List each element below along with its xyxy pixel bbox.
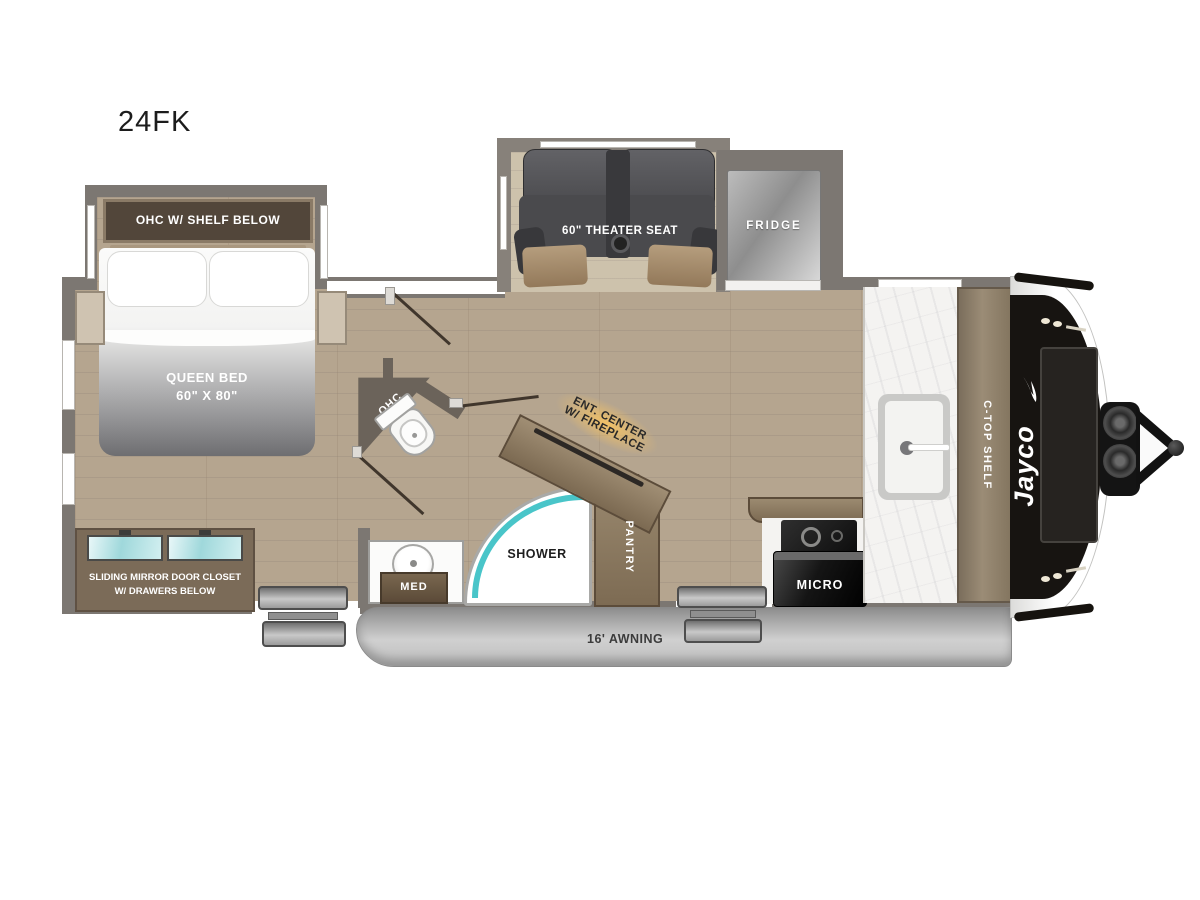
fridge: FRIDGE [727,170,821,282]
sliding-mirror-closet: SLIDING MIRROR DOOR CLOSET W/ DRAWERS BE… [75,528,255,612]
fridge-shelf [725,280,821,291]
left-wall [62,277,75,614]
burner-icon [831,530,843,542]
med-label: MED [382,581,446,595]
bed-label-line1: QUEEN BED [99,370,315,386]
shower-label: SHOWER [497,547,577,561]
closet-label-line1: SLIDING MIRROR DOOR CLOSET [77,572,253,584]
door-hinge [352,446,362,458]
entry-steps-right-lower [684,619,762,643]
faucet-spout [908,444,950,451]
microwave: MICRO [773,551,867,607]
floorplan-title: 24FK [118,106,191,139]
top-wall-window-band [327,277,505,298]
burner-icon [801,527,821,547]
pillow [107,251,207,307]
mirror-door [167,535,243,561]
theater-footrest [522,244,588,287]
cooktop [781,520,857,554]
ctop-shelf-label: C-TOP SHELF [977,365,993,525]
nightstand-left [75,291,105,345]
bed-label-line2: 60" X 80" [99,388,315,404]
theater-footrest [647,244,713,287]
hitch-ball-icon [1168,440,1184,456]
propane-tank [1103,444,1137,478]
theater-window-left [500,176,507,250]
propane-tank [1103,406,1137,440]
front-window [1040,347,1098,543]
vanity-sink-drain [410,560,417,567]
entry-steps-right [677,586,767,608]
entry-steps-left-lower [262,621,346,647]
nightstand-right [317,291,347,345]
marker-light [1053,573,1062,579]
theater-seat-label: 60" THEATER SEAT [540,224,700,238]
toilet-wall-stub [383,358,393,380]
theater-window-top [540,141,696,148]
med-cabinet: MED [380,572,448,604]
fridge-label: FRIDGE [728,219,820,233]
marker-light [1053,321,1062,327]
pantry-label: PANTRY [619,497,635,597]
pillow [209,251,309,307]
queen-bed: QUEEN BED 60" X 80" [99,248,315,456]
awning-label: 16' AWNING [587,632,663,646]
sheet-fold [99,330,315,346]
floorplan-canvas: 24FK OHC W/ SHELF BELOW QUEEN BED 60" X … [0,0,1200,900]
marker-light [1041,318,1050,324]
jayco-logo: Jayco [1009,396,1043,536]
bedroom-top-wall [85,185,327,197]
left-wall-window-1 [62,340,75,410]
entry-steps-right-riser [690,610,756,618]
marker-light [1041,576,1050,582]
mirror-door [87,535,163,561]
bedroom-ohc-label: OHC W/ SHELF BELOW [106,213,310,228]
bedroom-window-right [320,205,328,279]
microwave-top-trim [774,552,866,560]
door-hinge [449,398,463,408]
bedroom-window-left [87,205,95,279]
left-wall-window-2 [62,453,75,505]
microwave-label: MICRO [774,578,866,594]
bedroom-ohc-cabinet: OHC W/ SHELF BELOW [103,199,313,243]
entry-steps-left-riser [268,612,338,620]
door-hinge [385,287,395,305]
closet-label-line2: W/ DRAWERS BELOW [77,586,253,598]
entry-steps-left [258,586,348,610]
